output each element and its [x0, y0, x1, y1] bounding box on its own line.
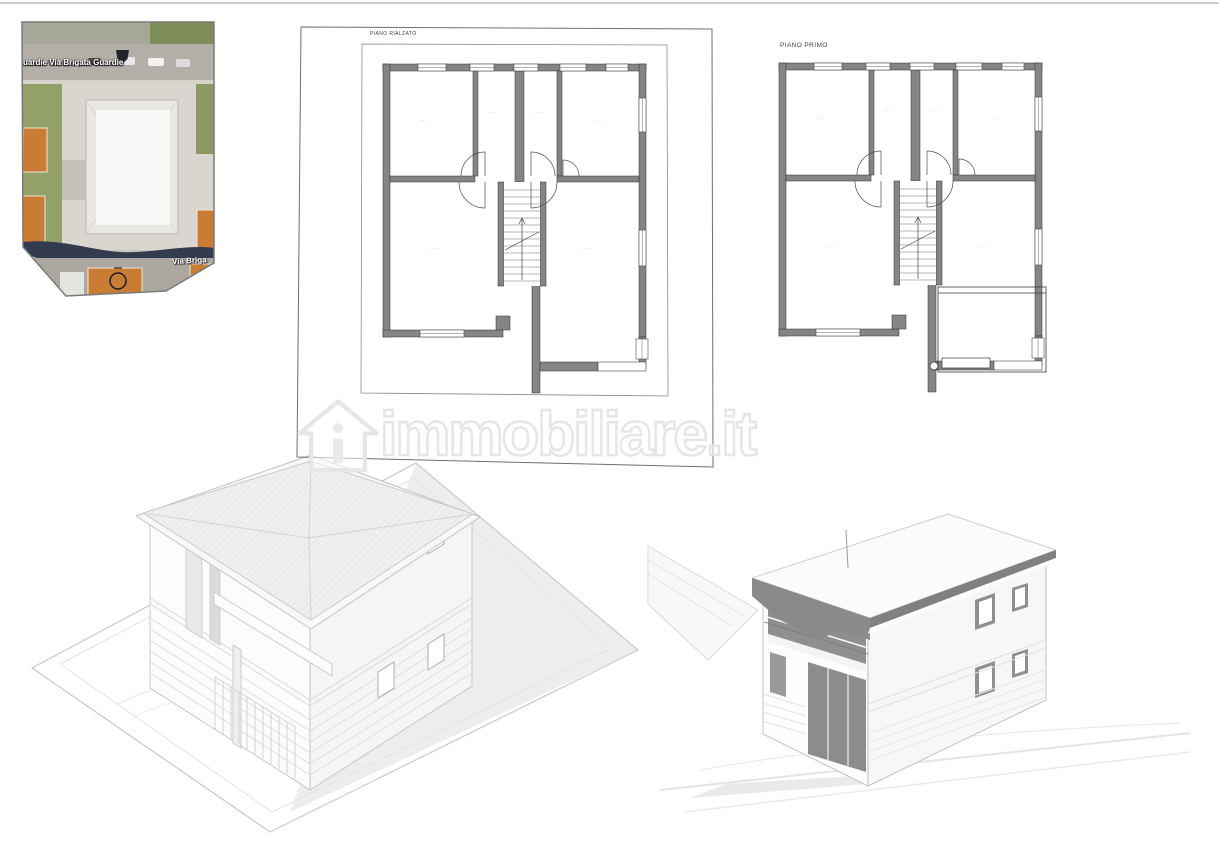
balcony-terrace: [930, 287, 1046, 372]
plan-title-center: PIANO RIALZATO: [370, 31, 417, 37]
render-perspective: [648, 514, 1190, 812]
floor-plan-right: [779, 63, 1044, 392]
render-axonometric: [32, 455, 638, 832]
page: uardie Via Brigata Guardie Via Briga PIA…: [0, 0, 1219, 864]
room-label: ···: [816, 116, 824, 122]
orange-roof-building: [197, 210, 214, 252]
plan-title-right: PIANO PRIMO: [780, 42, 828, 49]
street-label-top: uardie Via Brigata Guardie: [23, 58, 193, 67]
orange-roof-building: [23, 128, 47, 172]
house-icon: [296, 396, 380, 474]
watermark-text: immobiliare.it: [380, 398, 755, 472]
orange-roof-building: [88, 268, 142, 296]
glass-door: [808, 662, 866, 772]
room-label: ···: [884, 108, 892, 114]
room-label: ···: [826, 244, 834, 250]
room-label: ···: [430, 246, 438, 252]
room-label: ···: [930, 108, 938, 114]
neighbor-slab: [648, 546, 758, 660]
column-marker: [930, 362, 938, 370]
window-dark: [770, 652, 786, 697]
room-label: ···: [534, 110, 542, 116]
room-label: ···: [420, 118, 428, 124]
room-label: ···: [594, 118, 602, 124]
orange-roof-building: [23, 196, 45, 246]
room-label: ···: [990, 116, 998, 122]
orange-roof-building: [190, 264, 214, 292]
watermark: immobiliare.it: [296, 396, 755, 474]
room-label: ···: [978, 244, 986, 250]
room-label: ···: [582, 246, 590, 252]
room-label: ···: [488, 110, 496, 116]
column: [233, 645, 241, 748]
